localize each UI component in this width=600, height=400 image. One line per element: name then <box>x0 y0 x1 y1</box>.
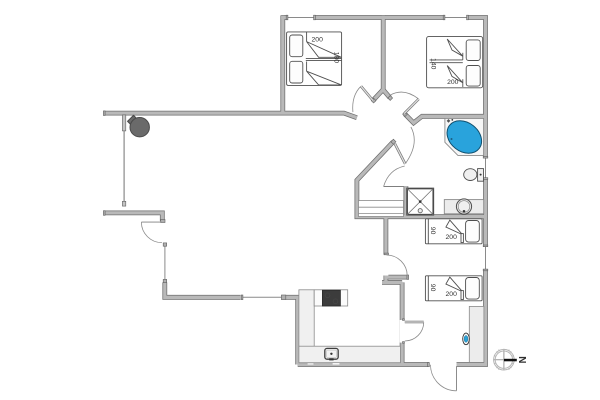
svg-text:200: 200 <box>446 291 458 298</box>
svg-text:200: 200 <box>447 79 459 86</box>
svg-text:200: 200 <box>446 234 458 241</box>
svg-text:200: 200 <box>312 37 324 44</box>
svg-text:N: N <box>516 356 527 363</box>
svg-text:180: 180 <box>333 52 340 64</box>
svg-text:90: 90 <box>429 284 436 292</box>
svg-text:90: 90 <box>429 227 436 235</box>
svg-text:140: 140 <box>430 58 437 70</box>
